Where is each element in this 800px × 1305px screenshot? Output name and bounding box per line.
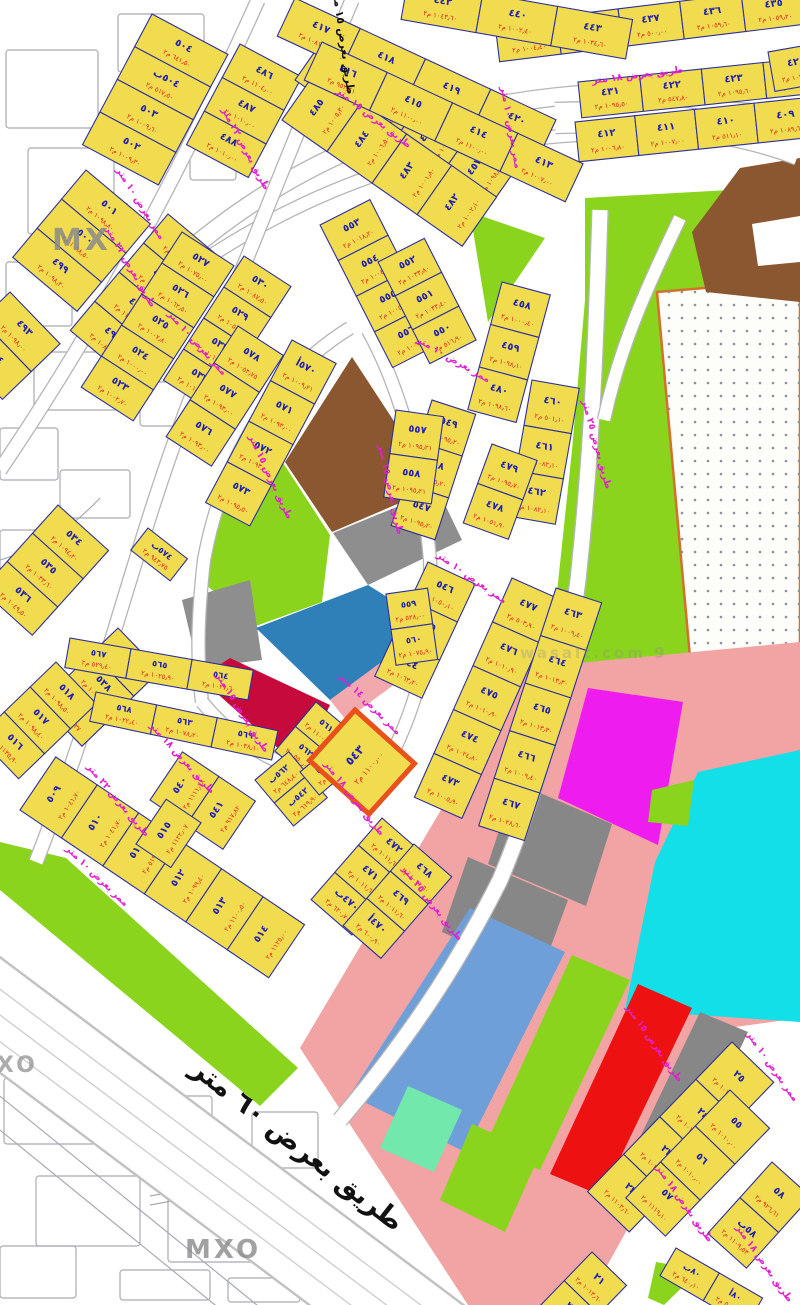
- map-plot[interactable]: ٤٢٣١٠٩٥٫٦٠ م٢: [701, 63, 766, 105]
- map-plot[interactable]: ٤١١١٠٠٧٫٠٠ م٢: [635, 109, 699, 155]
- map-plot[interactable]: ٤٠٩١٠٨٩٫٦٠ م٢: [754, 97, 800, 143]
- map-plot[interactable]: ٤٦٠٥٠١٫١٠ م٢: [524, 380, 579, 434]
- map-plot[interactable]: ٥٥٩٥٢٨٫٠٠ م٢: [386, 588, 433, 629]
- map-plot[interactable]: ٥٥٧١٠٩٥٫٢١ م٢: [390, 410, 444, 460]
- map-plot[interactable]: ٤١٠٥١١٫١٠ م٢: [694, 103, 758, 149]
- cadastral-map[interactable]: ٥٠٤٦٤١٫٥٠ م٢٥٠٤ب٥١٧٫٥٠ م٢٥٠٣١٠٠٩٫٦٠ م٢٥٠…: [0, 0, 800, 1305]
- map-plot[interactable]: ٥٦٠١٠٧٥٫٩٠ م٢: [391, 624, 438, 665]
- watermark: wasalt.com 9: [520, 644, 668, 662]
- watermark: MX: [52, 223, 111, 258]
- plot-number: ٤١١: [656, 121, 675, 134]
- map-plot[interactable]: ٤١٢١٠٠٦٫٨٠ م٢: [575, 116, 639, 162]
- plot-number: ٤١٠: [716, 115, 735, 128]
- plot-number: ٤٠٩: [776, 109, 795, 122]
- plot-number: ٤١٢: [597, 127, 616, 140]
- watermark: MXO: [0, 1053, 38, 1078]
- plot-number: ٤٢٢: [662, 79, 681, 92]
- plot-number: ٤٣١: [601, 86, 620, 99]
- plot-number: ٤٣٦: [702, 5, 722, 18]
- plot-number: ٤٣٧: [641, 13, 661, 26]
- plot-number: ٥٦٠: [405, 634, 422, 646]
- watermark: MXO: [185, 1235, 261, 1265]
- parcel-brown-building-notch[interactable]: [752, 216, 800, 266]
- map-plot[interactable]: ٤٣٦١٠٥٩٫٦٠ م٢: [680, 0, 746, 39]
- plot-number: ٤٢٣: [724, 73, 743, 86]
- plot-number: ٤٢٨: [786, 55, 800, 69]
- plot-map-canvas[interactable]: ٥٠٤٦٤١٫٥٠ م٢٥٠٤ب٥١٧٫٥٠ م٢٥٠٣١٠٠٩٫٦٠ م٢٥٠…: [0, 0, 800, 1305]
